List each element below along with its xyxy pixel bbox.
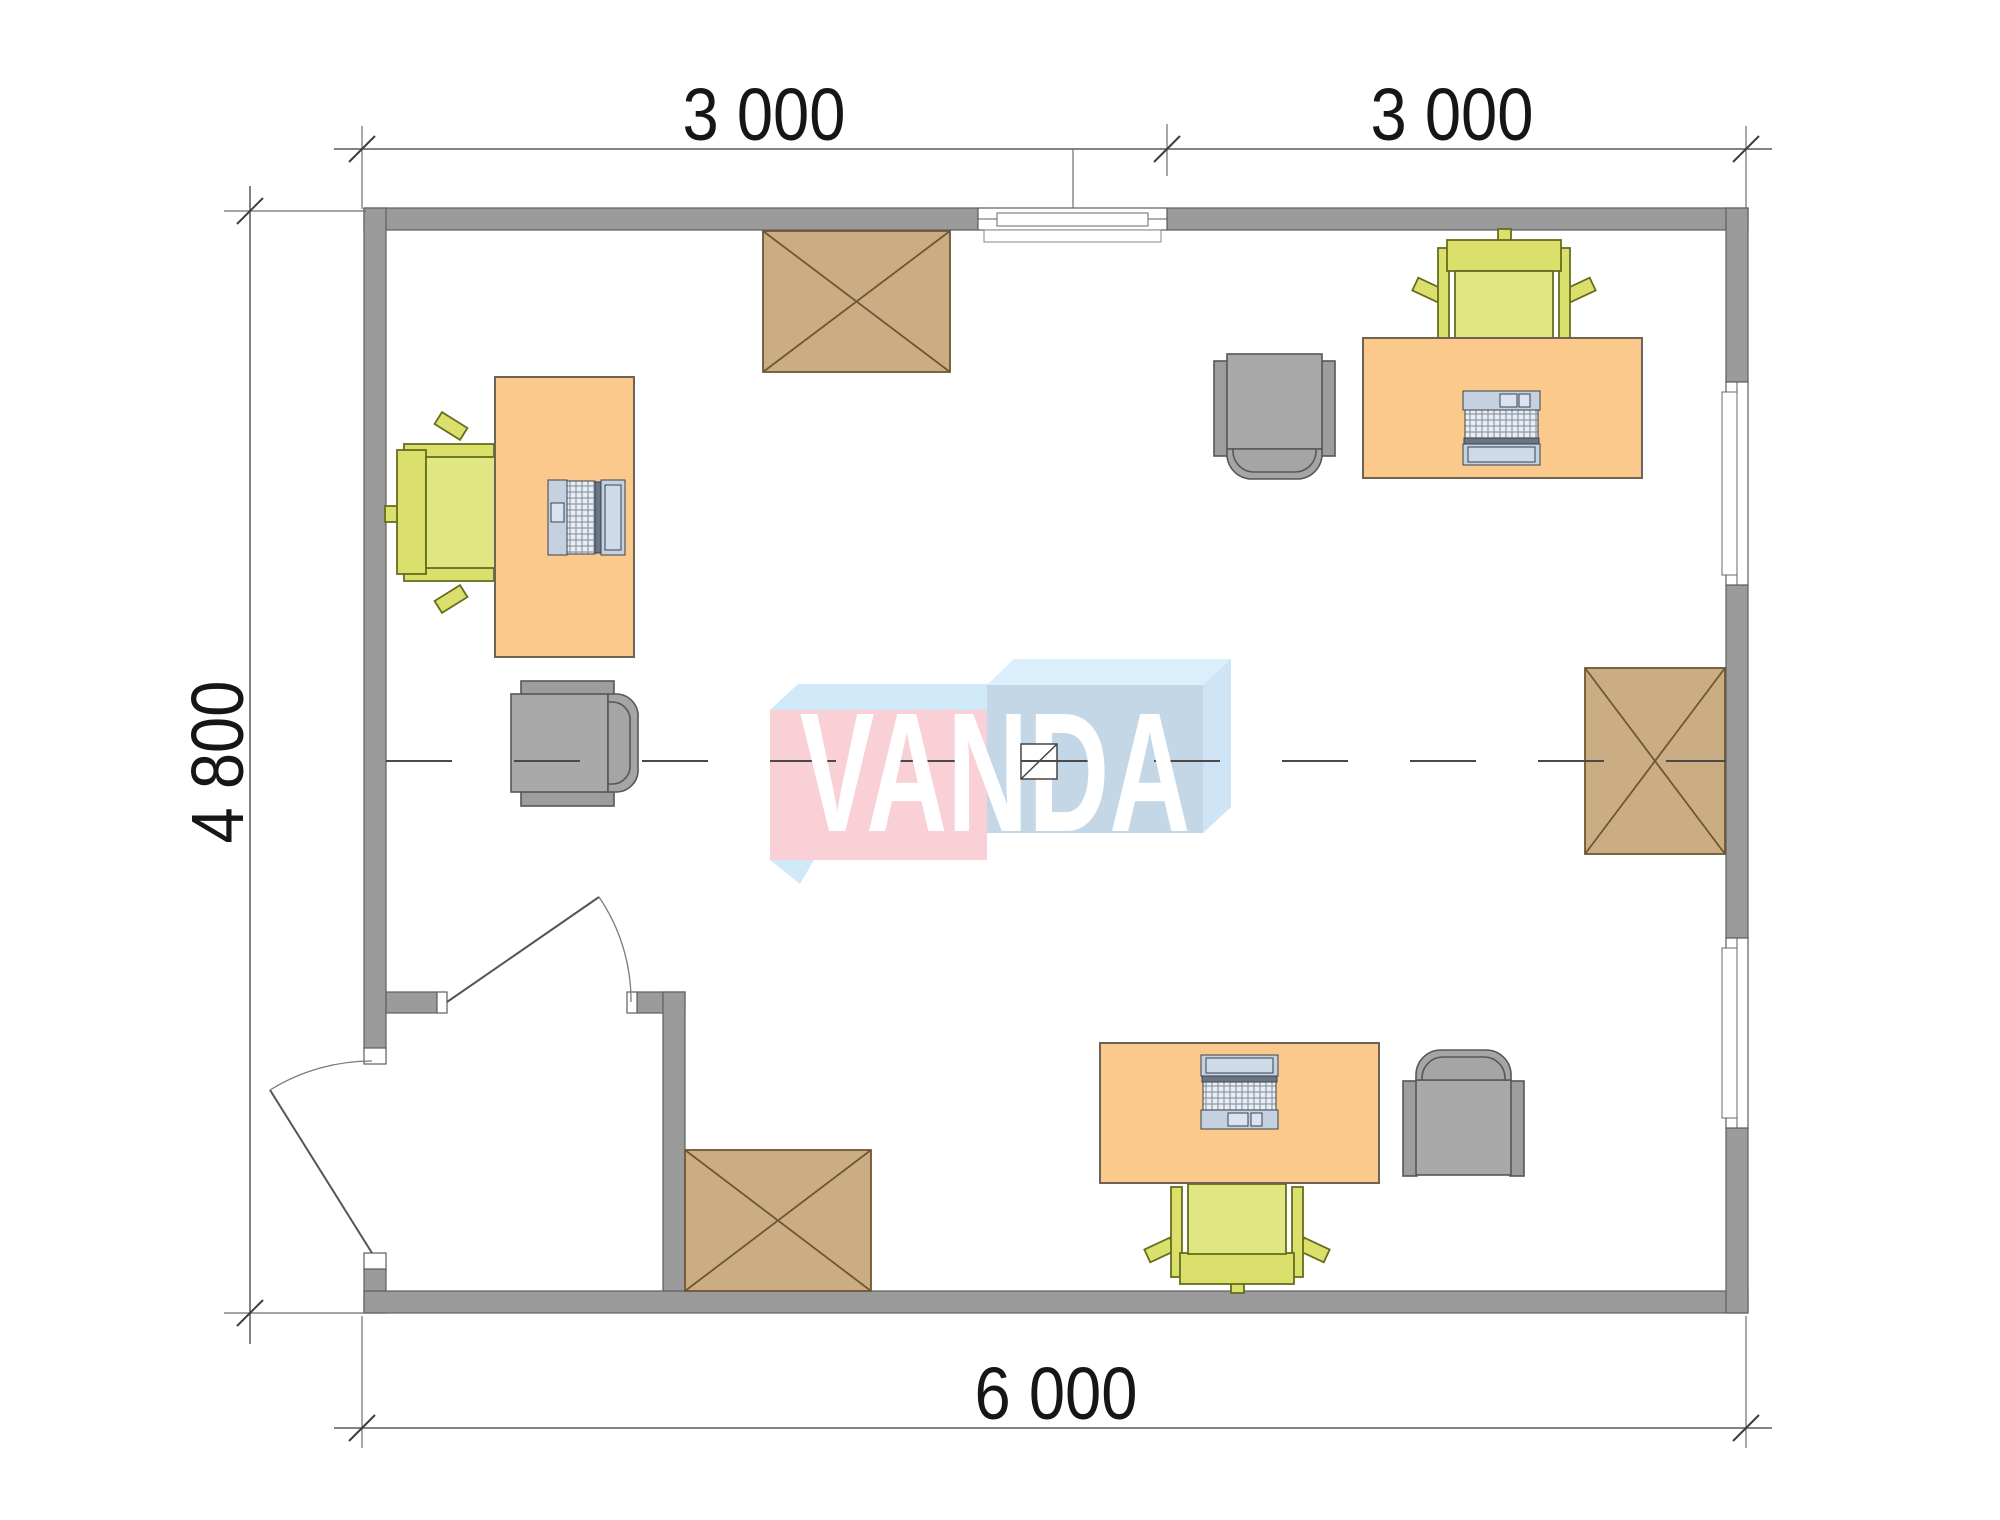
chair-wall-tab xyxy=(385,506,398,522)
chair-gray-2 xyxy=(1214,354,1335,479)
window-top-sill xyxy=(984,230,1161,242)
laptop-trackpad xyxy=(1228,1113,1248,1126)
laptop-screen-panel xyxy=(1206,1058,1273,1073)
chair-armrest xyxy=(1214,361,1228,456)
laptop-keyboard xyxy=(567,481,595,554)
laptop-trackpad xyxy=(551,503,564,522)
laptop-hinge xyxy=(1464,438,1539,444)
wall-left xyxy=(364,208,386,1050)
wall-top-left-segment xyxy=(364,208,978,230)
chair-seat xyxy=(511,694,608,792)
window-right-lower xyxy=(1722,938,1748,1128)
chair-seat xyxy=(1416,1080,1511,1175)
workstation-1 xyxy=(385,377,638,806)
dim-label-bottom: 6 000 xyxy=(975,1352,1138,1435)
chair-green-1 xyxy=(385,412,496,613)
floor-plan: VANDA 3 000 3 000 4 800 6 000 xyxy=(0,0,2000,1520)
dim-label-top-right: 3 000 xyxy=(1371,73,1534,156)
dim-label-top-left: 3 000 xyxy=(683,73,846,156)
workstation-2 xyxy=(1214,229,1642,479)
wall-vestibule-vertical xyxy=(663,992,685,1291)
window-top xyxy=(978,208,1167,242)
wall-right-lower xyxy=(1726,1128,1748,1313)
chair-seat xyxy=(1188,1184,1286,1254)
chair-back xyxy=(1416,1050,1511,1080)
chair-back xyxy=(397,450,426,574)
chair-back xyxy=(1227,449,1322,479)
chair-green-2 xyxy=(1412,229,1595,341)
wall-partition-left xyxy=(386,992,437,1013)
crossed-table-top xyxy=(763,231,950,372)
crossed-table-bottom xyxy=(685,1150,871,1291)
laptop-trackpad xyxy=(1519,394,1530,407)
laptop-hinge xyxy=(1202,1076,1277,1082)
wall-right-middle xyxy=(1726,585,1748,938)
door-leaf xyxy=(447,897,599,1002)
wall-bottom xyxy=(364,1291,1748,1313)
door-jamb xyxy=(437,992,447,1013)
interior-door xyxy=(437,897,637,1013)
chair-back xyxy=(608,694,638,792)
laptop-trackpad xyxy=(1251,1113,1262,1126)
chair-gray-3 xyxy=(1403,1050,1524,1176)
chair-gray-1 xyxy=(511,681,638,806)
window-right-upper xyxy=(1722,382,1748,585)
chair-seat xyxy=(1227,354,1322,449)
floor-plan-canvas: VANDA 3 000 3 000 4 800 6 000 xyxy=(0,0,2000,1520)
chair-back xyxy=(1447,240,1561,271)
laptop-keyboard xyxy=(1465,410,1538,438)
chair-green-3 xyxy=(1144,1184,1329,1293)
laptop-trackpad xyxy=(1500,394,1517,407)
door-jamb xyxy=(627,992,637,1013)
laptop-screen-panel xyxy=(605,485,621,550)
chair-armrest xyxy=(1510,1081,1524,1176)
chair-armrest xyxy=(1403,1081,1417,1176)
door-jamb xyxy=(364,1253,386,1269)
chair-foot-tab xyxy=(435,412,468,440)
laptop-1 xyxy=(548,480,625,555)
axis-marker xyxy=(1021,744,1057,779)
wall-top-right-segment xyxy=(1167,208,1748,230)
laptop-2 xyxy=(1463,391,1540,465)
laptop-keyboard xyxy=(1203,1082,1276,1110)
chair-seat xyxy=(1455,271,1553,341)
door-leaf xyxy=(270,1090,372,1253)
chair-foot-tab xyxy=(435,585,468,613)
chair-seat xyxy=(426,457,496,568)
laptop-hinge xyxy=(595,482,601,553)
chair-armrest xyxy=(1321,361,1335,456)
door-swing-arc xyxy=(270,1061,372,1090)
chair-back xyxy=(1180,1253,1294,1284)
wall-right-upper xyxy=(1726,208,1748,382)
entrance-door xyxy=(270,1048,386,1269)
workstation-3 xyxy=(1100,1043,1524,1293)
logo-box-right-side-flap xyxy=(1203,659,1231,833)
door-swing-arc xyxy=(599,897,631,1002)
dim-label-left: 4 800 xyxy=(176,681,259,844)
laptop-screen-panel xyxy=(1468,447,1535,462)
laptop-3 xyxy=(1201,1055,1278,1129)
logo-text: VANDA xyxy=(800,678,1191,868)
